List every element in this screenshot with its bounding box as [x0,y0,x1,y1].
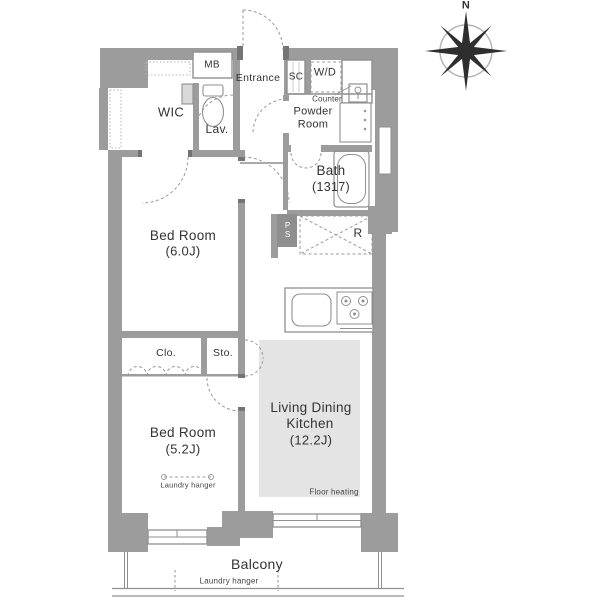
washbasin-icon [340,103,371,142]
bedroom2-window [148,530,207,544]
bedroom2-size-label: (5.2J) [165,443,200,458]
bath-size-label: (1317) [312,180,350,194]
powder-room-label: Powder Room [284,105,342,130]
floor-plan: N MB Entrance SC W/D Counter Powder Room… [0,0,600,600]
bedroom1-door-arc [243,157,289,203]
wic-door-arc [142,157,188,203]
ldk-size-label: (12.2J) [290,434,333,449]
ldk-label-line1: Living Dining [270,400,351,416]
bath-label: Bath [317,163,346,179]
floor-plan-drawing [0,0,600,600]
refrigerator-label: R [354,227,363,241]
ldk-label-line2: Kitchen [286,416,333,432]
ldk-window [273,514,361,527]
floor-heating-label: Floor heating [309,487,358,496]
front-door-arc [243,10,283,50]
counter-label: Counter [312,94,342,103]
toilet-icon [203,85,224,127]
washer-dryer-label: W/D [314,67,336,80]
bedroom2-laundry-hanger-label: Laundry hanger [160,482,215,491]
storage-label: Sto. [213,347,233,359]
wic-label: WIC [158,106,184,121]
balcony-label: Balcony [231,556,283,572]
bath-fold-door-arc [291,153,306,168]
bath-window [379,127,391,174]
bedroom1-size-label: (6.0J) [165,245,200,260]
pipe-space-label: PS [283,221,291,239]
closet-label: Clo. [156,347,176,359]
powder-room-door-arc [253,99,287,133]
laundry-hanger-symbol [162,475,214,480]
kitchen-counter [285,288,373,332]
compass-north-label: N [462,0,470,12]
compass-icon [425,11,507,91]
lav-label: Lav. [206,123,229,137]
shaft-box [182,84,193,104]
bedroom2-door-arc [207,378,240,411]
balcony-laundry-hanger-label: Laundry hanger [200,576,259,585]
entrance-label: Entrance [236,72,280,84]
bedroom1-label: Bed Room [150,228,216,244]
bedroom2-label: Bed Room [150,425,216,441]
shoe-closet-label: SC [289,71,304,83]
meter-box-label: MB [204,59,220,71]
